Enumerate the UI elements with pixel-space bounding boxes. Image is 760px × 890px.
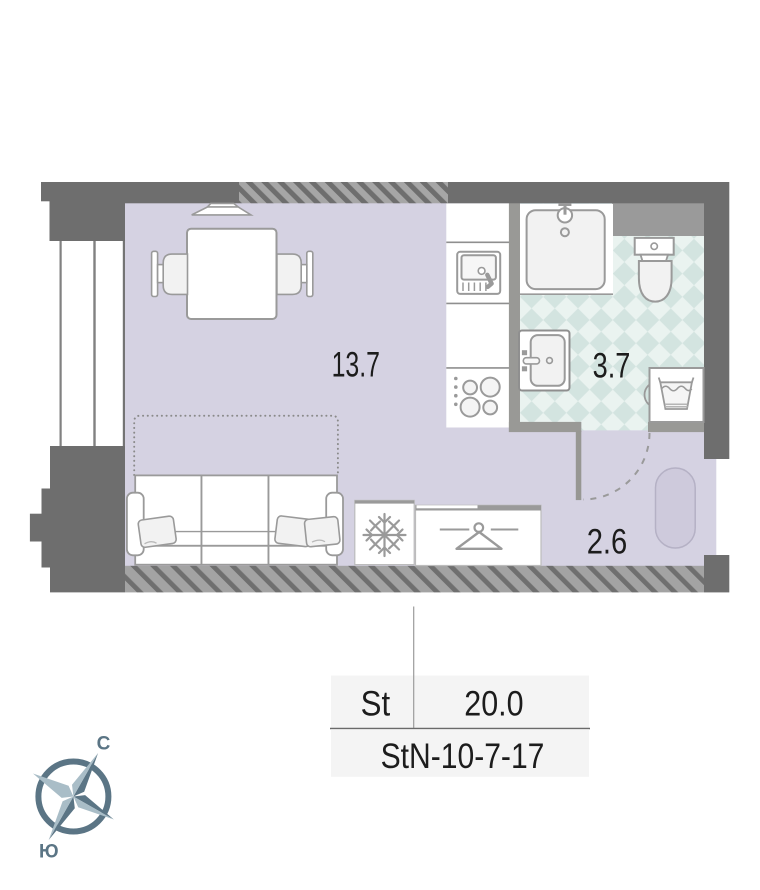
svg-text:2.6: 2.6 [587,523,628,562]
svg-text:13.7: 13.7 [332,345,380,384]
svg-text:St: St [361,685,391,724]
svg-text:3.7: 3.7 [593,347,631,386]
svg-text:20.0: 20.0 [464,685,523,724]
svg-text:С: С [97,733,111,754]
svg-text:Ю: Ю [39,842,59,863]
svg-text:StN-10-7-17: StN-10-7-17 [381,737,545,776]
